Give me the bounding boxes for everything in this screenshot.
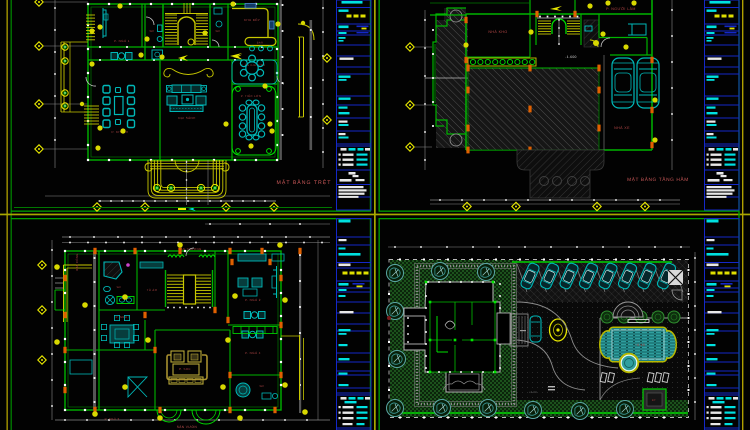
svg-text:P. NGỦ 4: P. NGỦ 4 xyxy=(245,351,261,355)
svg-text:ĐẠI SẢNH: ĐẠI SẢNH xyxy=(178,116,195,120)
svg-text:-1.600: -1.600 xyxy=(565,55,576,59)
svg-text:KT: KT xyxy=(652,399,656,402)
svg-text:NHÀ KHO: NHÀ KHO xyxy=(488,29,507,34)
svg-text:SÂN VƯỜN: SÂN VƯỜN xyxy=(177,425,198,429)
svg-text:P. NGỦ 3: P. NGỦ 3 xyxy=(105,417,120,421)
svg-text:+0.00: +0.00 xyxy=(529,391,537,394)
svg-text:P. TIỆC LỚN: P. TIỆC LỚN xyxy=(241,94,262,98)
svg-text:P. NGỦ 1: P. NGỦ 1 xyxy=(114,39,130,43)
svg-text:MẶT BẰNG TẦNG HẦM: MẶT BẰNG TẦNG HẦM xyxy=(627,176,689,183)
svg-text:P. KHÁCH: P. KHÁCH xyxy=(112,130,129,134)
svg-text:WC: WC xyxy=(117,286,122,289)
svg-text:TỦ ÁO: TỦ ÁO xyxy=(147,288,158,292)
svg-text:WC: WC xyxy=(215,30,220,33)
svg-text:MẶT BẰNG TRỆT: MẶT BẰNG TRỆT xyxy=(277,179,332,186)
svg-text:WC: WC xyxy=(259,385,264,388)
svg-text:BAR: BAR xyxy=(257,42,264,45)
svg-text:BAN CÔNG: BAN CÔNG xyxy=(75,253,79,270)
svg-text:KHU BẾP: KHU BẾP xyxy=(244,18,260,22)
svg-text:WC: WC xyxy=(149,30,154,33)
svg-text:P. NGỦ 2: P. NGỦ 2 xyxy=(245,298,261,302)
svg-text:P. SHC: P. SHC xyxy=(179,367,191,371)
svg-text:NHÀ XE: NHÀ XE xyxy=(614,125,630,130)
svg-text:P. NGƯỜI LÀM: P. NGƯỜI LÀM xyxy=(606,6,636,11)
svg-text:+0.90: +0.90 xyxy=(635,343,645,347)
